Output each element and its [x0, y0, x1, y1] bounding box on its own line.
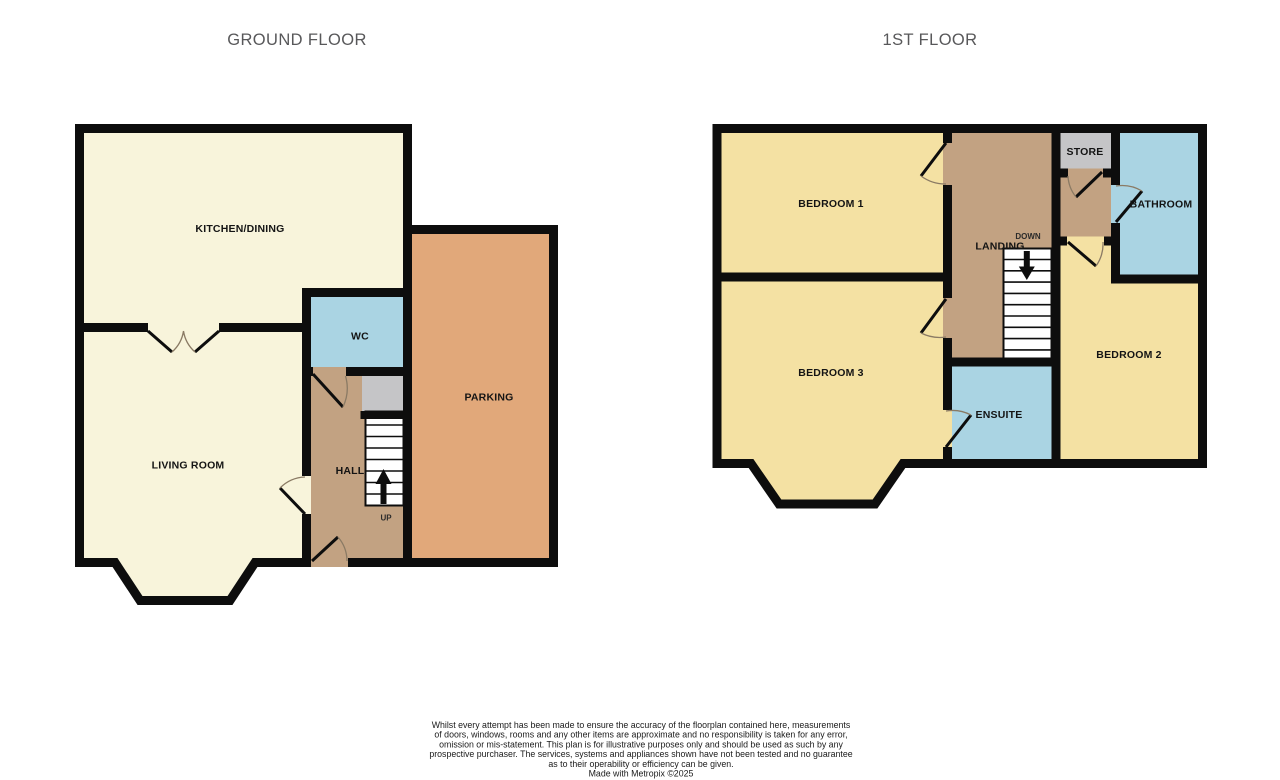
understair-store-area [362, 376, 404, 414]
ground-floor-title: GROUND FLOOR [227, 31, 367, 49]
stairs-up-label: UP [380, 514, 392, 523]
living-room-door-opening [302, 476, 311, 514]
disclaimer: Whilst every attempt has been made to en… [429, 720, 852, 779]
floorplan-drawing: GROUND FLOOR 1ST FLOOR [0, 0, 1280, 780]
ensuite-label: ENSUITE [976, 409, 1023, 421]
front-door-opening [311, 558, 348, 567]
bedroom-2-label: BEDROOM 2 [1096, 349, 1161, 361]
parking-label: PARKING [464, 392, 513, 404]
disclaimer-line: prospective purchaser. The services, sys… [429, 749, 852, 759]
kitchen-dining-label: KITCHEN/DINING [195, 223, 284, 235]
bedroom-1-label: BEDROOM 1 [798, 198, 863, 210]
wc-door-opening [313, 367, 346, 376]
first-floor-rooms [715, 126, 1205, 506]
store-label: STORE [1067, 146, 1104, 158]
room-landing-vestibule [1054, 168, 1120, 245]
first-floor-title: 1ST FLOOR [883, 31, 978, 49]
stairs-down-label: DOWN [1015, 232, 1041, 241]
living-room-label: LIVING ROOM [152, 460, 225, 472]
landing-label: LANDING [975, 241, 1024, 253]
room-bedroom-3 [715, 277, 950, 506]
ground-floor-rooms [79, 128, 556, 603]
bedroom-3-label: BEDROOM 3 [798, 367, 863, 379]
disclaimer-line: of doors, windows, rooms and any other i… [434, 730, 847, 740]
disclaimer-line: Whilst every attempt has been made to en… [432, 720, 851, 730]
wc-label: WC [351, 331, 369, 343]
floorplan-page: GROUND FLOOR 1ST FLOOR [0, 0, 1280, 780]
hall-label: HALL [336, 465, 365, 477]
disclaimer-line: as to their operability or efficiency ca… [548, 759, 733, 769]
made-with-metropix-credit: Made with Metropix ©2025 [589, 769, 694, 779]
disclaimer-line: omission or mis-statement. This plan is … [439, 739, 843, 749]
bathroom-label: BATHROOM [1130, 199, 1193, 211]
